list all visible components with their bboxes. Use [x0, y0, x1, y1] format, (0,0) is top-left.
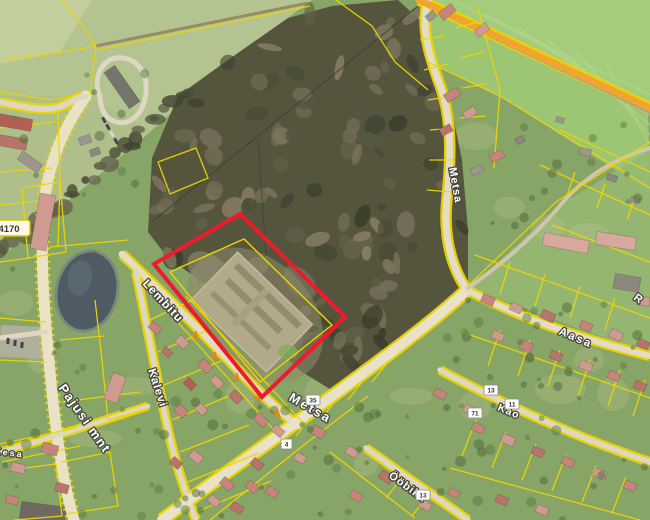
- house-number: 13: [484, 385, 498, 395]
- house-number: 13: [416, 490, 430, 500]
- house-number: 71: [468, 408, 482, 418]
- road-number-badge-text: 4170: [0, 224, 20, 235]
- map-viewport[interactable]: Lembitu Kalevi Pajusi mnt Metsa Metsa Aa…: [0, 0, 650, 520]
- svg-text:71: 71: [471, 411, 479, 418]
- svg-text:35: 35: [309, 398, 317, 405]
- house-number: 4: [281, 439, 292, 449]
- house-number: 11: [505, 399, 519, 409]
- svg-text:11: 11: [509, 402, 516, 409]
- svg-text:4: 4: [285, 442, 289, 449]
- svg-text:13: 13: [419, 493, 427, 500]
- road-number-badge: 4170: [0, 220, 30, 236]
- svg-text:13: 13: [487, 388, 495, 395]
- house-number: 35: [306, 395, 320, 405]
